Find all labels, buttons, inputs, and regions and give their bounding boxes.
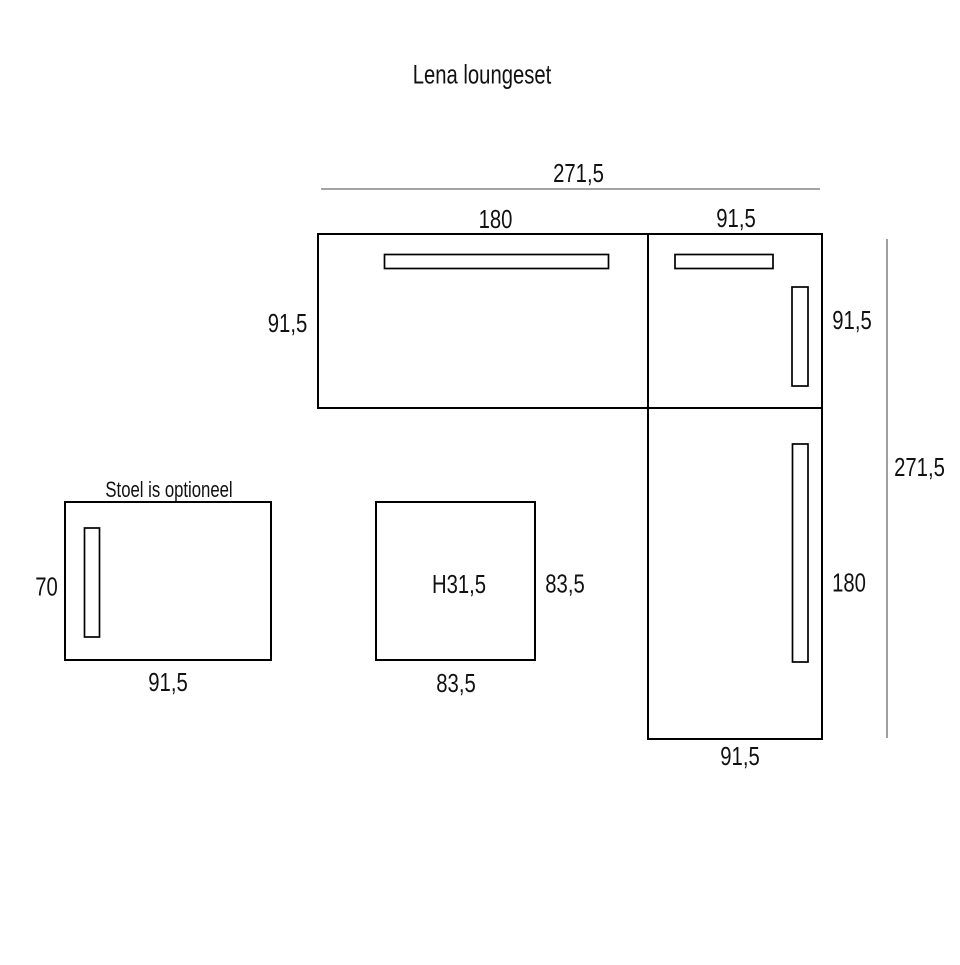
svg-text:70: 70 xyxy=(35,572,58,601)
svg-text:91,5: 91,5 xyxy=(268,309,307,338)
svg-text:180: 180 xyxy=(832,568,866,597)
svg-text:H31,5: H31,5 xyxy=(432,570,486,599)
svg-text:271,5: 271,5 xyxy=(894,453,945,482)
svg-text:91,5: 91,5 xyxy=(148,668,187,697)
svg-text:Lena loungeset: Lena loungeset xyxy=(413,60,552,91)
svg-text:Stoel is optioneel: Stoel is optioneel xyxy=(105,478,232,503)
svg-text:83,5: 83,5 xyxy=(436,669,475,698)
svg-text:271,5: 271,5 xyxy=(553,159,604,188)
svg-text:91,5: 91,5 xyxy=(720,742,759,771)
svg-text:91,5: 91,5 xyxy=(716,204,755,233)
svg-text:180: 180 xyxy=(479,205,513,234)
svg-text:83,5: 83,5 xyxy=(545,569,584,598)
svg-text:91,5: 91,5 xyxy=(832,306,871,335)
